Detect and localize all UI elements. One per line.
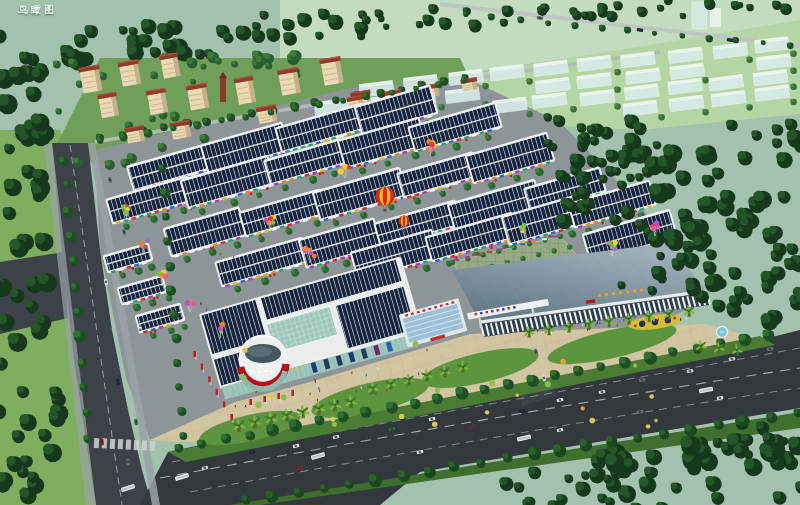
fountain	[717, 327, 728, 338]
drum-banner-glyph	[250, 372, 254, 373]
clock-tower	[219, 72, 227, 102]
drum-banner-glyph	[264, 371, 268, 372]
view-label: 鸟瞰图	[18, 3, 57, 17]
skybridge-sign-glyph	[502, 308, 505, 311]
exhibition-roof-text-glyph	[626, 290, 629, 293]
skybridge-sign-glyph	[474, 313, 477, 316]
skybridge-sign-glyph	[491, 310, 494, 313]
exhibition-roof-text-glyph	[619, 291, 622, 294]
exhibition-roof-text-glyph	[598, 294, 601, 297]
mall-drum	[240, 336, 287, 389]
drum-banner-glyph	[257, 372, 261, 373]
skybridge-sign-glyph	[507, 307, 510, 310]
drum-banner-glyph	[271, 371, 275, 372]
residential-building	[256, 104, 279, 124]
exhibition-roof-text-glyph	[612, 292, 615, 295]
skybridge-sign-glyph	[513, 306, 516, 309]
residential-building	[124, 125, 146, 144]
aerial-rendering-masterplan: 鸟瞰图	[0, 0, 800, 505]
exhibition-roof-text-glyph	[640, 288, 643, 291]
skybridge-sign-glyph	[485, 311, 488, 314]
skybridge-sign-glyph	[496, 309, 499, 312]
exhibition-roof-text-glyph	[633, 289, 636, 292]
skybridge-sign-glyph	[480, 312, 483, 315]
exhibition-roof-text-glyph	[605, 293, 608, 296]
rendering-canvas	[0, 0, 800, 505]
